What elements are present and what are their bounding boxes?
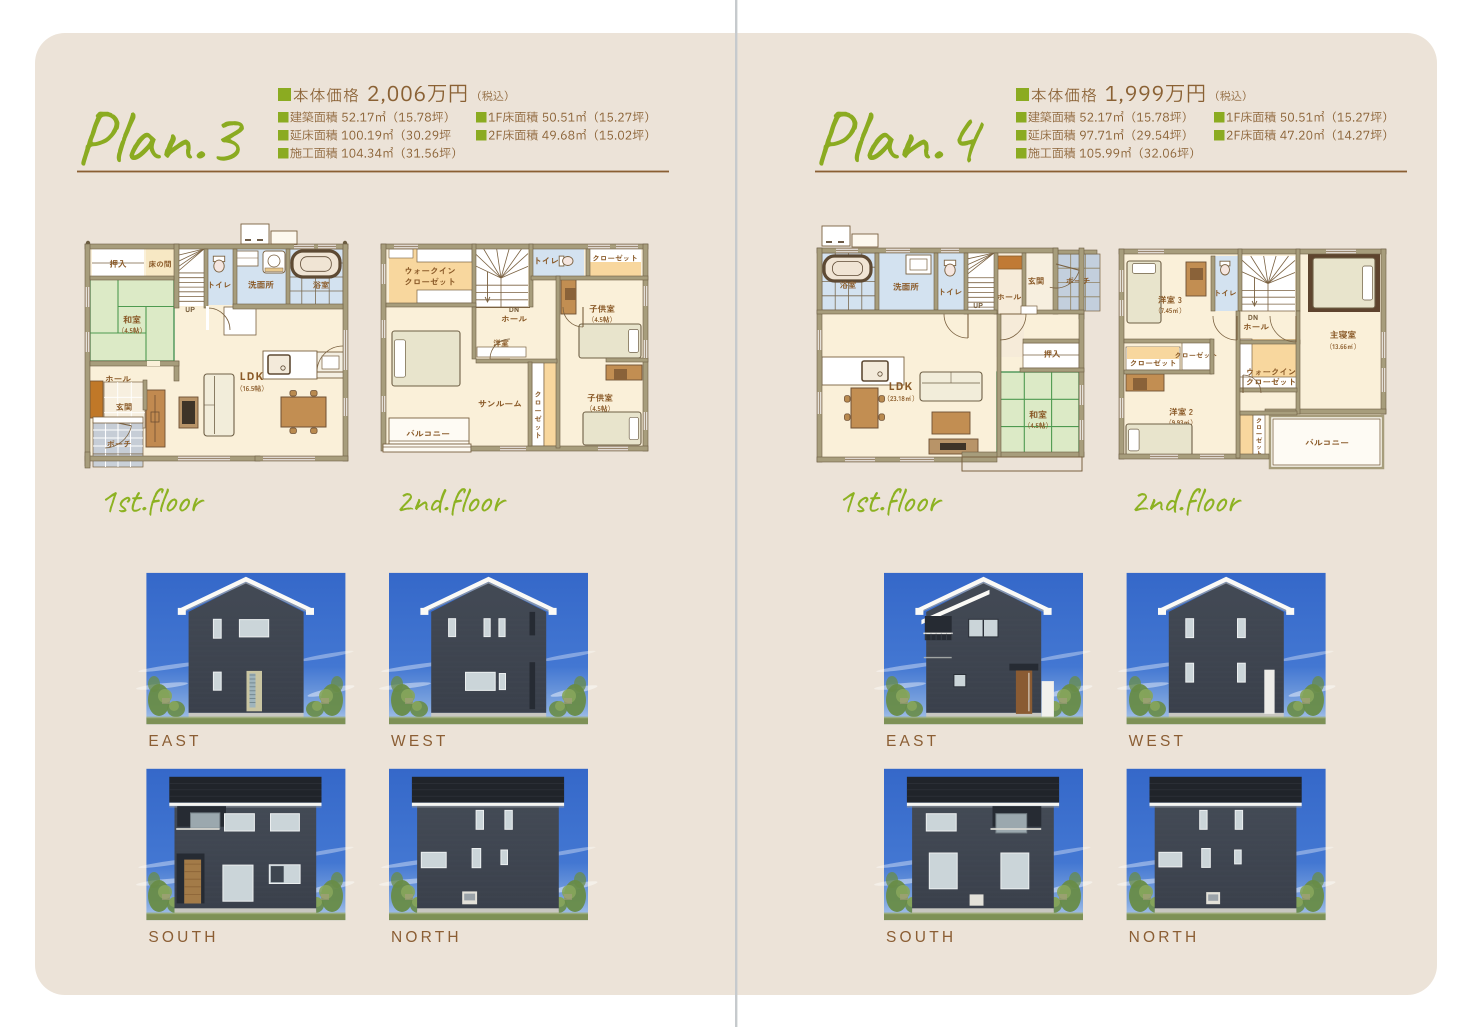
svg-text:WEST: WEST <box>391 733 449 750</box>
svg-text:SOUTH: SOUTH <box>886 929 956 946</box>
svg-text:NORTH: NORTH <box>1129 929 1200 946</box>
svg-text:NORTH: NORTH <box>391 929 462 946</box>
svg-text:SOUTH: SOUTH <box>148 929 218 946</box>
svg-text:EAST: EAST <box>886 733 939 750</box>
svg-text:EAST: EAST <box>148 733 201 750</box>
svg-text:WEST: WEST <box>1129 733 1187 750</box>
